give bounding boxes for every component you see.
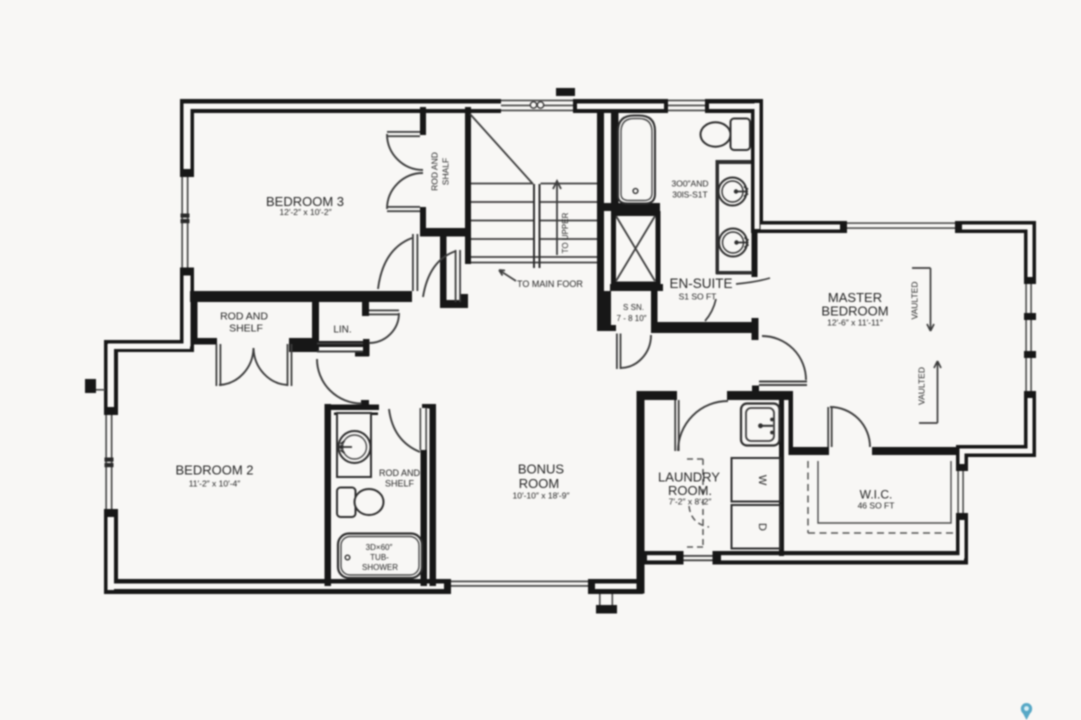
svg-text:7′-2″ x 8′-2″: 7′-2″ x 8′-2″ xyxy=(669,497,712,507)
svg-text:BONUS: BONUS xyxy=(518,462,565,477)
svg-text:10′-10″ x 18′-9″: 10′-10″ x 18′-9″ xyxy=(513,491,570,501)
svg-text:EN-SUITE: EN-SUITE xyxy=(669,276,732,291)
svg-text:SHELF: SHELF xyxy=(229,323,263,335)
svg-text:W: W xyxy=(756,475,768,486)
svg-text:46 SO FT: 46 SO FT xyxy=(858,501,895,511)
svg-text:3O0″AND: 3O0″AND xyxy=(671,179,708,189)
svg-text:ROD AND: ROD AND xyxy=(430,152,440,191)
svg-text:LIN.: LIN. xyxy=(333,325,351,336)
svg-text:VAULTED: VAULTED xyxy=(917,367,927,405)
svg-text:W.I.C.: W.I.C. xyxy=(860,488,893,502)
svg-text:TO MAIN FOOR: TO MAIN FOOR xyxy=(517,279,583,289)
svg-text:12′-6″ x 11′-11″: 12′-6″ x 11′-11″ xyxy=(827,318,883,328)
svg-text:30lS-S1T: 30lS-S1T xyxy=(672,190,707,200)
svg-text:SHALF: SHALF xyxy=(441,158,451,185)
svg-text:ROD AND: ROD AND xyxy=(379,468,421,478)
svg-text:7 - 8 10″: 7 - 8 10″ xyxy=(617,314,647,323)
svg-text:S1 SO FT: S1 SO FT xyxy=(679,292,717,302)
svg-text:3D×60″: 3D×60″ xyxy=(366,543,393,552)
svg-text:S SN.: S SN. xyxy=(623,303,644,312)
svg-text:12′-2″ x 10′-2″: 12′-2″ x 10′-2″ xyxy=(279,207,331,217)
svg-text:11′-2″ x 10′-4″: 11′-2″ x 10′-4″ xyxy=(189,479,241,489)
svg-text:ROOM: ROOM xyxy=(519,476,559,491)
svg-text:D: D xyxy=(756,523,768,531)
svg-text:ROD AND: ROD AND xyxy=(220,311,268,323)
svg-text:BEDROOM 2: BEDROOM 2 xyxy=(175,463,253,478)
svg-text:BEDROOM: BEDROOM xyxy=(821,304,888,319)
svg-text:VAULTED: VAULTED xyxy=(910,282,920,320)
svg-text:TO UPPER: TO UPPER xyxy=(561,212,570,253)
svg-text:SHELF: SHELF xyxy=(385,479,415,489)
svg-text:SHOWER: SHOWER xyxy=(362,563,398,572)
svg-text:TUB-: TUB- xyxy=(370,553,389,562)
